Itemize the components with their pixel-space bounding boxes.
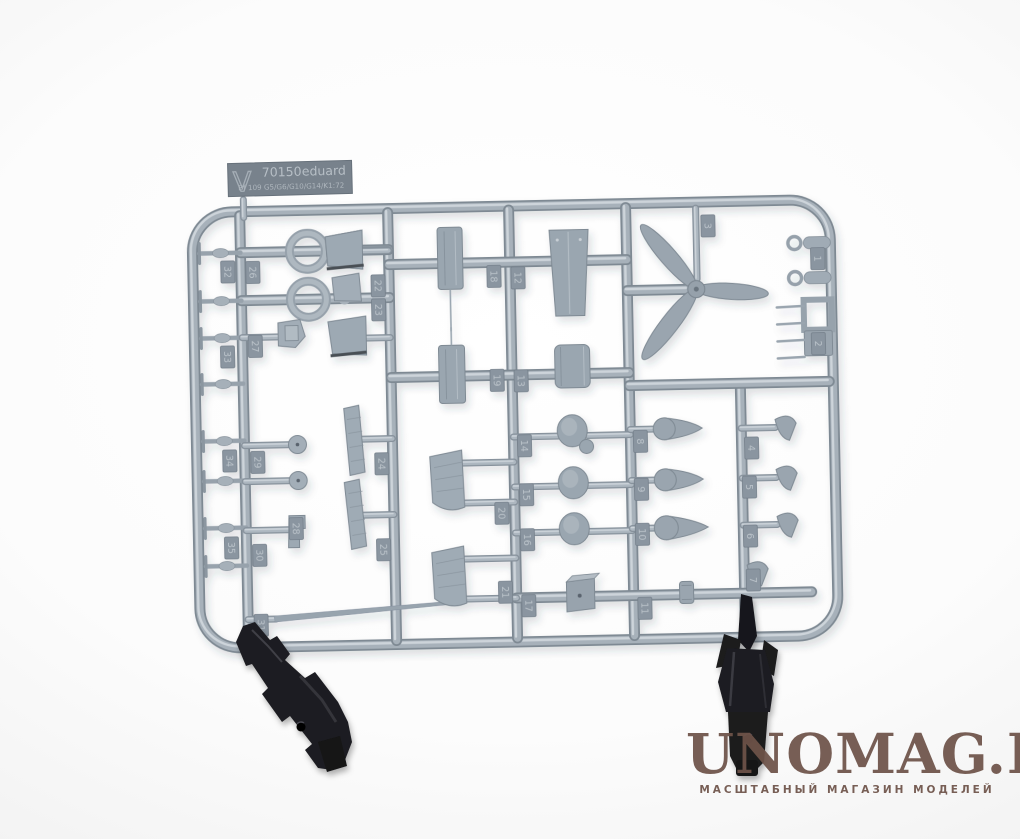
part-number-label: 1 — [811, 255, 822, 261]
part-number-tab: 14 — [517, 435, 531, 457]
part-number-tab: 6 — [743, 525, 757, 547]
part-number-label: 9 — [635, 486, 646, 492]
spinner-part — [652, 417, 709, 540]
part-number-tab: 29 — [251, 451, 265, 473]
part-number-tab: 16 — [520, 529, 534, 551]
part-number-tab: 34 — [223, 450, 237, 472]
part-number-tab: 33 — [220, 346, 234, 368]
part-number-label: 14 — [518, 440, 529, 452]
part-number-tab: 3 — [701, 215, 715, 237]
lever-part — [200, 291, 241, 312]
photo-canvas: 1234567891011121314151617181920212223242… — [0, 0, 1020, 839]
sprue-photo: 1234567891011121314151617181920212223242… — [0, 0, 1020, 839]
part-number-label: 13 — [515, 375, 526, 387]
pitot-tube-part — [274, 601, 451, 622]
fuselage-panel-part — [549, 229, 590, 316]
disc-part — [288, 435, 307, 489]
part-number-label: 16 — [521, 534, 532, 546]
part-number-label: 2 — [812, 340, 823, 346]
part-number-label: 20 — [495, 507, 506, 519]
radiator-part — [436, 227, 466, 404]
part-number-tab: 10 — [635, 523, 649, 545]
part-number-tab: 26 — [246, 261, 260, 283]
part-number-tab: 19 — [490, 369, 504, 391]
flap-part — [430, 450, 467, 606]
part-number-tab: 2 — [811, 332, 825, 354]
part-number-tab: 8 — [633, 430, 647, 452]
box-part — [566, 573, 600, 612]
part-number-label: 3 — [702, 223, 713, 229]
part-number-tab: 28 — [289, 517, 303, 539]
part-number-label: 23 — [372, 304, 383, 316]
lever-part — [201, 328, 242, 349]
windscreen-part — [278, 319, 306, 348]
part-number-tab: 7 — [746, 569, 760, 591]
part-number-tab: 1 — [810, 247, 824, 269]
part-number-tab: 9 — [634, 478, 648, 500]
sprue-id-tag: V 70150 eduard Bf 109 G5/G6/G10/G14/K 1:… — [228, 160, 353, 198]
tag-kit-number: 70150 — [262, 164, 302, 180]
tag-scale: 1:72 — [328, 181, 344, 190]
part-number-tab: 17 — [522, 595, 536, 617]
part-number-tab: 27 — [248, 335, 262, 357]
part-number-label: 27 — [249, 340, 260, 352]
part-number-tab: 24 — [375, 453, 389, 475]
part-number-label: 33 — [221, 351, 232, 363]
part-number-label: 8 — [634, 438, 645, 444]
part-number-label: 26 — [246, 266, 257, 278]
part-number-label: 35 — [225, 542, 236, 554]
part-number-label: 21 — [499, 586, 510, 598]
part-number-label: 34 — [223, 455, 234, 467]
slat-part — [343, 405, 367, 549]
part-number-label: 15 — [520, 489, 531, 501]
part-number-label: 10 — [636, 528, 647, 540]
part-number-tab: 21 — [498, 581, 512, 603]
part-number-label: 25 — [377, 544, 388, 556]
cowl-saddle-part — [554, 344, 590, 388]
part-number-tab: 32 — [221, 261, 235, 283]
part-number-tab: 35 — [224, 537, 238, 559]
cowl-fin-part — [328, 316, 367, 356]
part-number-label: 5 — [743, 484, 754, 490]
part-number-label: 4 — [745, 445, 756, 451]
part-number-tab: 23 — [371, 299, 385, 321]
lever-part — [199, 243, 240, 264]
part-number-tab: 30 — [253, 544, 267, 566]
part-number-label: 12 — [511, 272, 522, 284]
part-number-tab: 18 — [487, 265, 501, 287]
part-number-label: 32 — [221, 266, 232, 278]
part-number-label: 24 — [375, 458, 386, 470]
part-number-tab: 20 — [495, 502, 509, 524]
part-number-tab: 12 — [511, 267, 525, 289]
part-number-label: 29 — [251, 456, 262, 468]
part-number-label: 28 — [290, 522, 301, 534]
lever-part — [204, 471, 245, 492]
part-number-label: 22 — [372, 280, 383, 292]
holder-clip-right — [716, 594, 778, 776]
part-number-tab: 5 — [742, 476, 756, 498]
part-number-label: 19 — [491, 374, 502, 386]
part-number-label: 11 — [638, 602, 649, 614]
sprue-frame: 1234567891011121314151617181920212223242… — [190, 186, 839, 648]
part-number-tab: 25 — [376, 539, 390, 561]
part-number-label: 18 — [487, 270, 498, 282]
part-number-tab: 11 — [638, 597, 652, 619]
tag-brand: eduard — [302, 163, 346, 179]
part-number-tab: 4 — [744, 437, 758, 459]
part-number-label: 7 — [747, 577, 758, 583]
part-number-label: 30 — [253, 549, 264, 561]
part-number-label: 6 — [744, 533, 755, 539]
lever-part — [203, 431, 244, 452]
part-number-tab: 13 — [514, 370, 528, 392]
cowl-fin-part — [325, 230, 364, 302]
lever-part — [202, 374, 243, 395]
part-number-tab: 22 — [371, 275, 385, 297]
lever-part — [205, 518, 246, 539]
part-number-tab: 15 — [519, 484, 533, 506]
nozzle-part — [679, 581, 693, 603]
part-number-label: 17 — [522, 600, 533, 612]
